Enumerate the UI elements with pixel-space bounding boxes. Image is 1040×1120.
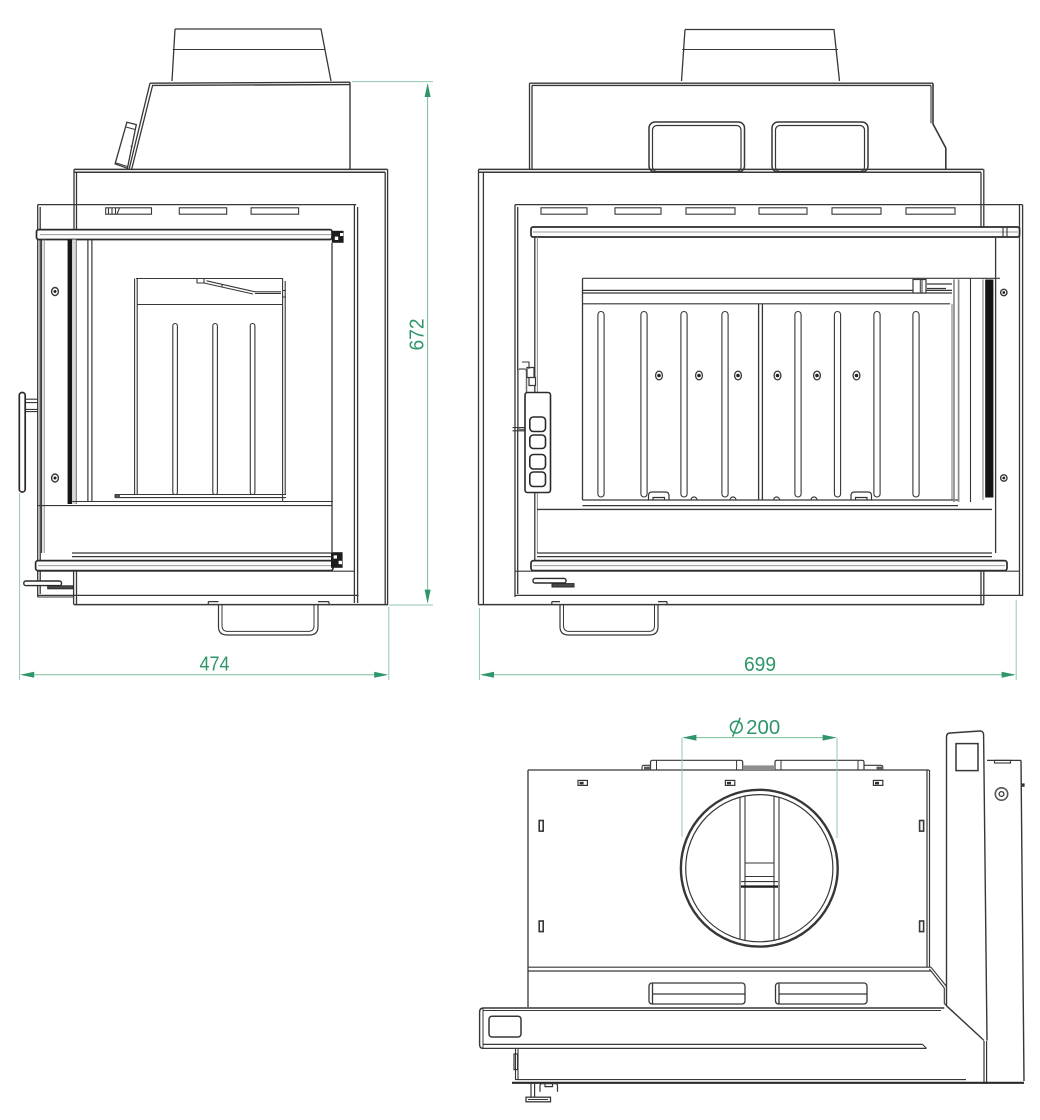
- svg-text:672: 672: [406, 319, 429, 351]
- svg-text:474: 474: [200, 653, 230, 675]
- svg-text:200: 200: [746, 717, 780, 739]
- svg-text:699: 699: [744, 654, 776, 676]
